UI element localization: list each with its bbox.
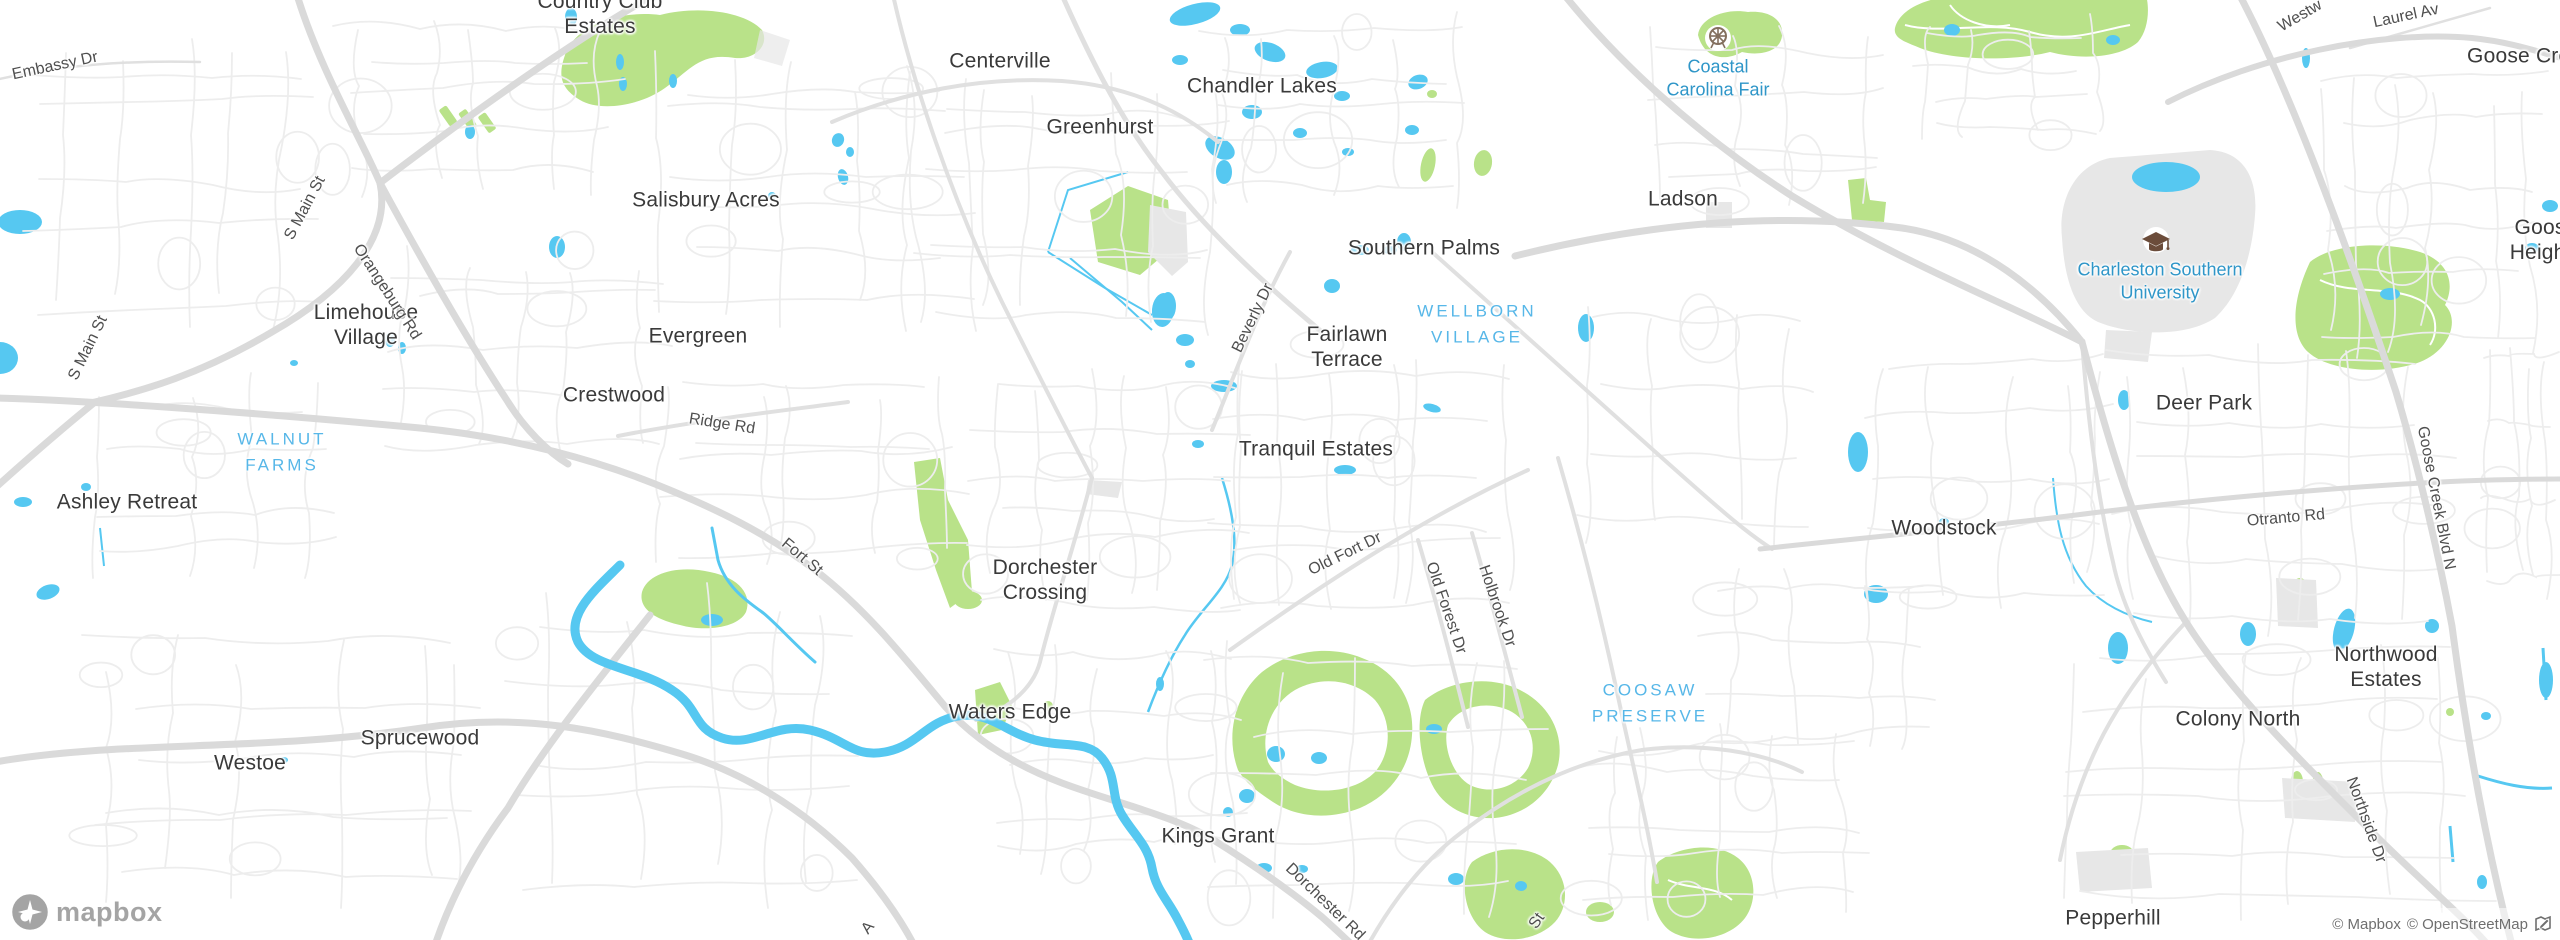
mapbox-star-icon	[8, 890, 52, 934]
mapbox-logo[interactable]: mapbox	[8, 890, 163, 934]
park-areas	[439, 0, 2454, 939]
improve-map-icon[interactable]	[2534, 915, 2552, 933]
map-canvas[interactable]: Country Club EstatesCentervilleGreenhurs…	[0, 0, 2560, 940]
attribution-mapbox-link[interactable]: © Mapbox	[2332, 916, 2401, 933]
map-base-layer	[0, 0, 2560, 940]
mapbox-wordmark: mapbox	[56, 897, 163, 928]
attribution-bar: © Mapbox © OpenStreetMap	[2318, 908, 2560, 940]
attribution-osm-link[interactable]: © OpenStreetMap	[2407, 916, 2528, 933]
ferris-wheel-icon	[1705, 25, 1731, 51]
